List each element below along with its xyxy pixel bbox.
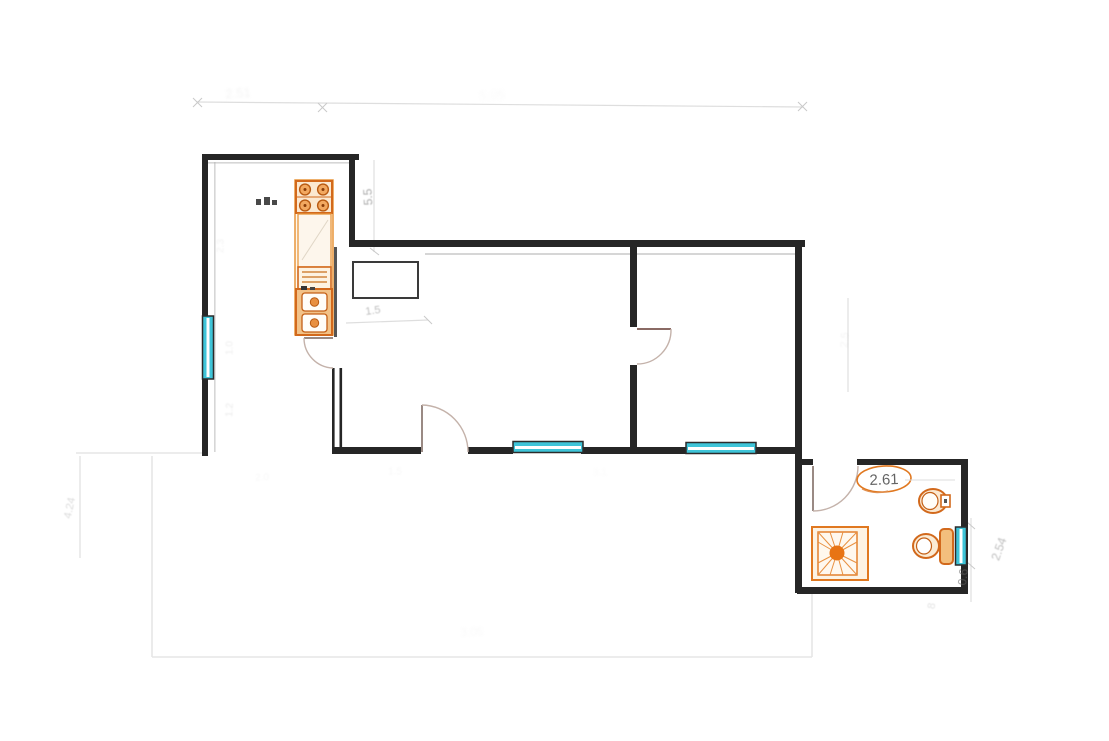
sink-icon [296, 286, 332, 335]
duct-shaft-box [353, 262, 418, 298]
living-room-window [513, 442, 583, 453]
kitchen-door [304, 338, 333, 368]
bidet-icon [919, 489, 950, 513]
kitchen-living-wall-upper [334, 247, 337, 337]
wall-marks [256, 197, 277, 205]
bathroom-bottom-wall [797, 587, 968, 594]
kitchen-counter [295, 180, 333, 335]
living-room-door [422, 405, 468, 452]
kitchen-left-wall [202, 154, 208, 456]
drainer-icon [298, 267, 331, 289]
floor-plan-canvas: 2.515.055.51.52.31.01.24.242.610.62.542.… [0, 0, 1109, 741]
bathroom-fixtures [812, 465, 955, 580]
dimension-highlight-ellipse [856, 465, 955, 494]
floor-plan-drawing [0, 0, 1109, 741]
top-outer-wall [349, 240, 805, 247]
bathroom-window [956, 527, 967, 565]
stove-icon [296, 181, 332, 213]
kitchen-right-wall [349, 154, 355, 247]
bottom-wall [755, 447, 802, 454]
cabinet-icon [298, 214, 331, 267]
right-outer-wall [795, 240, 802, 593]
bottom-wall [581, 447, 686, 454]
toilet-icon [913, 529, 953, 564]
kitchen-top-wall [202, 154, 359, 160]
bottom-wall [468, 447, 513, 454]
bottom-wall [332, 447, 421, 454]
kitchen-living-wall-lower [340, 368, 343, 447]
bathroom-door [813, 466, 858, 511]
room-divider-wall-lower [630, 365, 637, 454]
bedroom-window [686, 443, 756, 454]
doors [304, 329, 858, 511]
kitchen-living-wall-lower [332, 368, 335, 447]
room-divider-wall-upper [630, 247, 637, 327]
shower-icon [812, 527, 868, 580]
bathroom-top-wall [802, 459, 813, 465]
corridor-outline [76, 453, 812, 657]
bathroom-right-wall [961, 459, 968, 593]
bathroom-top-wall [857, 459, 968, 465]
bedroom-door [637, 329, 671, 364]
kitchen-window [203, 316, 214, 379]
